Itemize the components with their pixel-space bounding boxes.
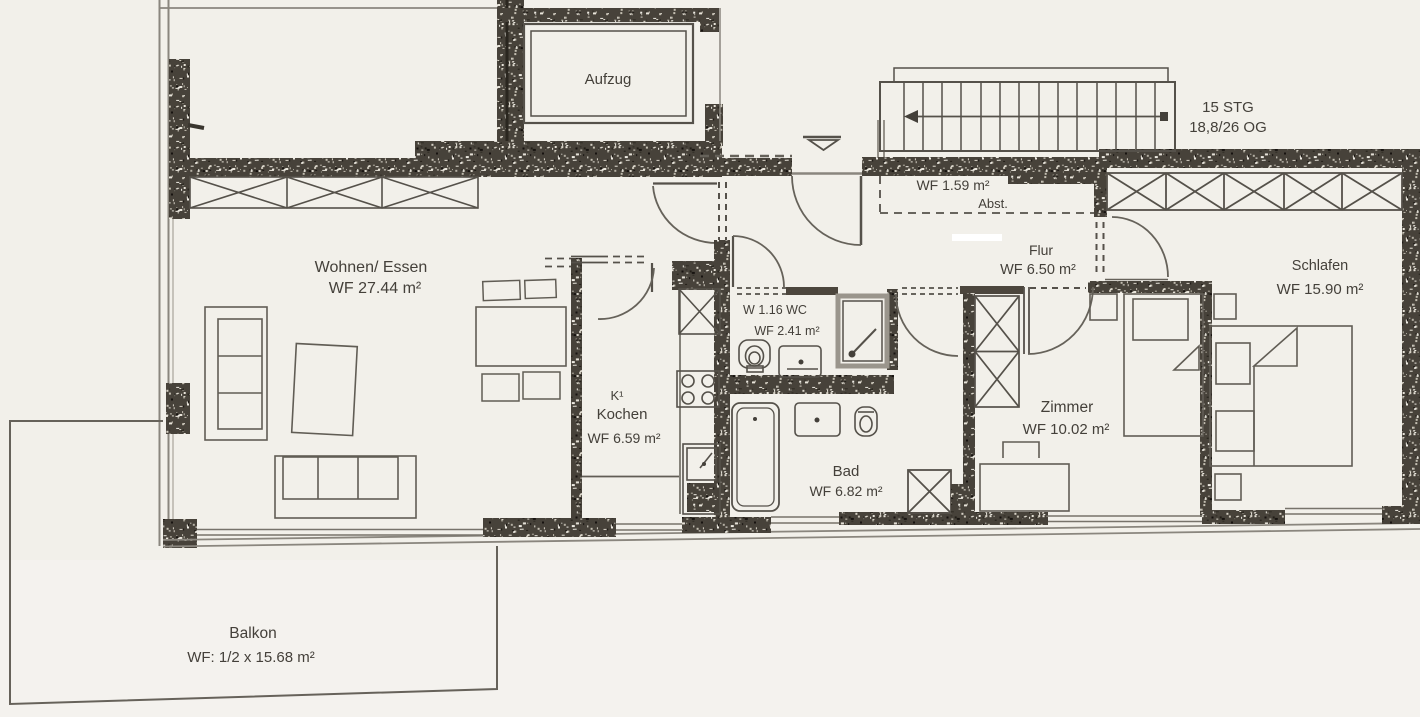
svg-text:WF 6.59 m²: WF 6.59 m² (587, 430, 660, 446)
svg-text:WF 10.02 m²: WF 10.02 m² (1023, 421, 1110, 438)
svg-text:Wohnen/ Essen: Wohnen/ Essen (315, 259, 428, 276)
svg-text:Schlafen: Schlafen (1292, 258, 1348, 274)
svg-text:Balkon: Balkon (229, 625, 276, 642)
svg-text:WF 6.50 m²: WF 6.50 m² (1000, 262, 1076, 278)
svg-text:15 STG: 15 STG (1202, 99, 1254, 116)
svg-text:W 1.16 WC: W 1.16 WC (743, 303, 807, 317)
svg-text:Kochen: Kochen (597, 406, 648, 423)
svg-text:WF 1.59 m²: WF 1.59 m² (916, 177, 989, 193)
svg-text:WF 27.44 m²: WF 27.44 m² (329, 280, 422, 297)
svg-text:18,8/26 OG: 18,8/26 OG (1189, 119, 1267, 136)
svg-text:WF: 1/2 x 15.68 m²: WF: 1/2 x 15.68 m² (187, 649, 315, 666)
svg-text:Bad: Bad (833, 463, 860, 480)
svg-text:WF 15.90 m²: WF 15.90 m² (1277, 281, 1364, 298)
svg-text:K¹: K¹ (611, 388, 625, 403)
svg-text:Aufzug: Aufzug (585, 71, 632, 88)
svg-text:Abst.: Abst. (978, 196, 1008, 211)
svg-text:WF 2.41 m²: WF 2.41 m² (754, 324, 819, 338)
svg-text:Flur: Flur (1029, 242, 1053, 258)
svg-text:Zimmer: Zimmer (1041, 399, 1094, 416)
svg-text:WF 6.82 m²: WF 6.82 m² (809, 483, 882, 499)
